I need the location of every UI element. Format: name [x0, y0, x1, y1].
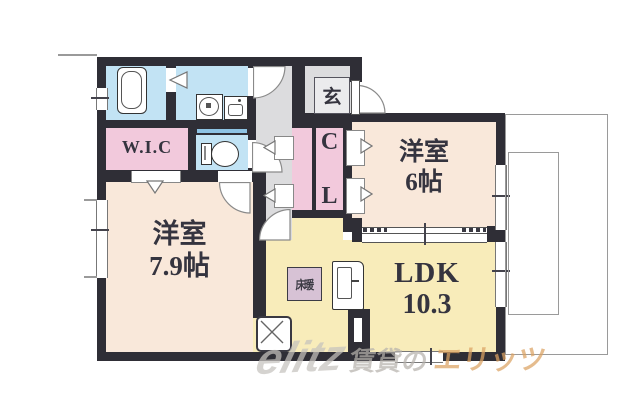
ldk-door-arc — [259, 209, 291, 241]
bedroom6-name: 洋室 — [352, 138, 496, 168]
wic-label: W.I.C — [110, 137, 184, 158]
window-ldk-bottom-tick — [430, 348, 432, 365]
floorplan-canvas: 床暖 玄 W.I.C C L 洋室 6帖 洋室 7.9帖 LDK 10.3 el… — [0, 0, 640, 416]
sliding-door-center-tick — [424, 223, 426, 245]
hall-closet-door-upper — [274, 136, 294, 160]
bedroom79-name: 洋室 — [106, 218, 253, 250]
sliding-door-pocket-right — [462, 228, 486, 232]
bedroom79-size: 7.9帖 — [106, 250, 253, 282]
wall-genkan-left — [292, 66, 305, 115]
bedroom79-door-opening — [218, 171, 252, 182]
hall-closet-door-lower — [274, 184, 294, 208]
kitchen-stub-slot — [354, 318, 362, 342]
balcony-outline-inner — [508, 152, 559, 315]
room-ldk-kitchen-nook — [292, 218, 343, 240]
sliding-door-pocket-left — [363, 228, 387, 232]
bath-folding-door-icon — [168, 70, 188, 90]
entrance-door-leaf — [351, 80, 360, 115]
bathtub-icon — [117, 67, 147, 114]
wall-closet-bottom — [292, 210, 352, 218]
washing-machine-icon — [196, 94, 223, 120]
toilet-shelf — [197, 129, 247, 133]
bedroom6-size: 6帖 — [352, 168, 496, 198]
ldk-name: LDK — [352, 257, 502, 289]
wall-bottom — [97, 352, 505, 361]
cl-char-c: C — [321, 130, 338, 154]
exterior-line-left-upper — [84, 199, 97, 201]
washroom-door-arc — [253, 66, 286, 99]
window-ldk-bottom — [395, 351, 443, 363]
ldk-size: 10.3 — [352, 289, 502, 320]
wic-folding-door-icon — [146, 180, 164, 194]
genkan-step: 玄 — [314, 77, 350, 114]
window-bathroom — [96, 88, 108, 110]
wall-entrance-stub — [350, 57, 362, 82]
cl-label: C L — [316, 130, 343, 208]
wall-right — [496, 113, 505, 361]
exterior-line-left-lower — [84, 276, 97, 278]
floor-heating-badge: 床暖 — [287, 267, 322, 301]
ldk-label: LDK 10.3 — [352, 257, 502, 320]
wall-bedroom6-top — [350, 113, 505, 122]
hall-closet-door-upper-icon — [263, 140, 276, 155]
bedroom79-label: 洋室 7.9帖 — [106, 218, 253, 282]
window-bathroom-tick — [91, 97, 109, 99]
wall-slider-cap-left — [352, 226, 362, 242]
pipe-space-icon — [256, 316, 292, 352]
exterior-line-topleft — [58, 54, 97, 56]
closet-hall-strip — [292, 128, 312, 210]
hall-closet-door-lower-icon — [263, 188, 276, 203]
floor-heating-label: 床暖 — [296, 276, 313, 293]
wall-wetarea-bottom — [97, 120, 256, 128]
wall-top — [97, 57, 362, 66]
toilet-bowl-icon — [211, 141, 239, 167]
entrance-door-arc — [357, 85, 386, 114]
bedroom6-label: 洋室 6帖 — [352, 138, 496, 198]
genkan-label: 玄 — [322, 82, 341, 109]
bedroom79-door-arc — [219, 182, 251, 214]
vanity-sink-icon — [224, 96, 248, 120]
cl-char-l: L — [321, 184, 337, 208]
